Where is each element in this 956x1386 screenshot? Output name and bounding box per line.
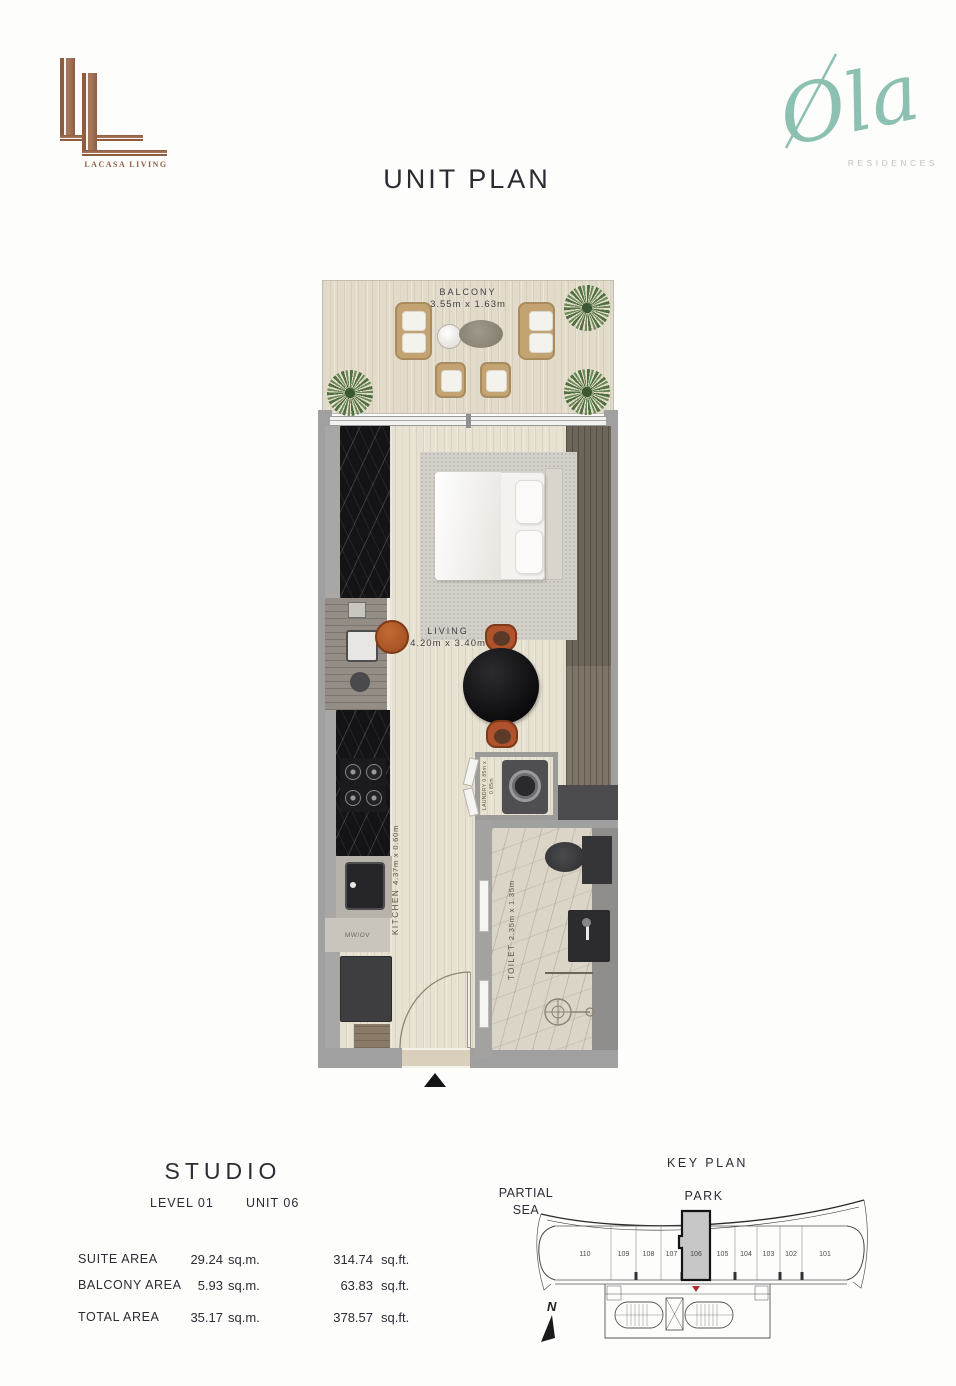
kitchen-label: KITCHEN	[391, 889, 400, 935]
compass-svg: N	[533, 1296, 577, 1346]
unit-number: 102	[785, 1251, 797, 1258]
balcony-side-table	[437, 324, 462, 349]
floor-plan: BALCONY 3.55m x 1.63m	[318, 280, 618, 1090]
stove-burner	[366, 764, 382, 780]
keyplan-core	[605, 1284, 770, 1338]
key-plan-title: KEY PLAN	[640, 1156, 775, 1170]
area-sqm-unit: sq.m.	[228, 1252, 260, 1267]
highlighted-unit	[679, 1211, 710, 1280]
window-center-post	[466, 414, 471, 428]
sofa-cushion	[529, 311, 553, 331]
area-sqft-unit: sq.ft.	[381, 1310, 409, 1325]
plant	[564, 369, 610, 415]
area-sqm-unit: sq.m.	[228, 1310, 260, 1325]
bed-headboard	[545, 468, 563, 580]
kitchen-counter-wood	[325, 598, 390, 710]
lacasa-logo-bar	[82, 150, 167, 156]
stove-burner	[345, 764, 361, 780]
area-sqm-value: 5.93	[160, 1278, 223, 1293]
toilet-label-group: TOILET 2.35m x 1.35m	[506, 860, 532, 1000]
ola-logo-subtitle: RESIDENCES	[828, 158, 938, 168]
bed-pillow	[515, 480, 543, 524]
ola-logo-script: Ola	[760, 48, 940, 168]
unit-type-title: STUDIO	[128, 1158, 318, 1185]
bed	[435, 472, 545, 580]
laundry-closet: LAUNDRY 0.85m x 0.85m	[475, 752, 558, 820]
mwov-panel: MW/OV	[325, 918, 390, 952]
lacasa-logo: LACASA LIVING	[55, 48, 195, 178]
area-sqft-value: 378.57	[312, 1310, 373, 1325]
toilet-back-panel	[582, 836, 612, 884]
area-name: SUITE AREA	[78, 1252, 158, 1266]
area-sqm-unit: sq.m.	[228, 1278, 260, 1293]
lacasa-logo-bar	[60, 135, 143, 141]
unit-number: 108	[643, 1251, 655, 1258]
wall-bottom	[318, 1048, 402, 1068]
sink-counter	[336, 856, 392, 918]
chair-cushion	[486, 370, 507, 392]
unit-number: 107	[666, 1251, 678, 1258]
dining-chair	[486, 720, 518, 748]
wardrobe	[340, 426, 390, 598]
sliding-door-panel	[479, 980, 489, 1028]
laundry-label: LAUNDRY 0.85m x 0.85m	[482, 759, 496, 813]
keyplan-left-wing	[539, 1226, 555, 1280]
chair-seat	[493, 631, 510, 646]
kitchen-label-group: KITCHEN 4.37m x 0.60m	[390, 815, 414, 945]
sofa-cushion	[402, 333, 426, 353]
unit-number: 103	[763, 1251, 775, 1258]
area-name: TOTAL AREA	[78, 1310, 160, 1324]
balcony-sofa	[518, 302, 555, 360]
vanity-knob	[582, 918, 591, 927]
dining-table	[463, 648, 539, 724]
wc	[545, 842, 585, 872]
unit-number: 104	[740, 1251, 752, 1258]
toilet-top-wall	[475, 820, 618, 828]
unit-plan-page: LACASA LIVING UNIT PLAN Ola RESIDENCES B…	[0, 0, 956, 1386]
washing-machine	[502, 760, 548, 814]
unit-number: 106	[690, 1251, 702, 1258]
shower-icon	[540, 992, 596, 1032]
keyplan-right-wing	[847, 1226, 864, 1280]
area-sqm-value: 29.24	[160, 1252, 223, 1267]
sofa-cushion	[529, 333, 553, 353]
unit-label: UNIT 06	[246, 1196, 299, 1210]
laundry-label-text: LAUNDRY	[482, 784, 488, 811]
charcoal-wall	[558, 785, 618, 822]
entrance-threshold	[402, 1048, 470, 1068]
toilet-dims: 2.35m x 1.35m	[507, 880, 516, 940]
balcony-armchair	[435, 362, 466, 398]
stove-burner	[345, 790, 361, 806]
north-compass: N	[533, 1296, 577, 1346]
bed-pillow	[515, 530, 543, 574]
kitchen-dims: 4.37m x 0.60m	[391, 825, 400, 885]
area-sqft-value: 314.74	[312, 1252, 373, 1267]
unit-number: 101	[819, 1251, 831, 1258]
lacasa-logo-bar	[82, 73, 97, 156]
counter-hob	[350, 672, 370, 692]
area-sqft-unit: sq.ft.	[381, 1278, 409, 1293]
wall-left	[318, 412, 325, 1068]
ola-logo: Ola RESIDENCES	[760, 48, 940, 178]
key-plan-map: 110 109 108 107 106 105 104 103 102 101	[535, 1198, 870, 1348]
sofa-cushion	[402, 311, 426, 331]
sink	[345, 862, 385, 910]
area-sqft-unit: sq.ft.	[381, 1252, 409, 1267]
north-label: N	[547, 1299, 557, 1314]
page-title: UNIT PLAN	[327, 164, 607, 195]
unit-number: 105	[717, 1251, 729, 1258]
stove	[340, 758, 386, 812]
bed-duvet	[435, 472, 501, 580]
compass-arrow-icon	[541, 1315, 555, 1342]
door-leaf	[467, 972, 471, 1048]
balcony-coffee-table	[459, 320, 503, 348]
kitchen-cabinet	[340, 956, 392, 1022]
area-sqm-value: 35.17	[160, 1310, 223, 1325]
unit-marker-icon	[692, 1286, 700, 1292]
unit-number: 110	[579, 1251, 590, 1258]
sink-faucet	[350, 882, 356, 888]
sliding-door-panel	[479, 880, 489, 932]
keyplan-ticks	[635, 1272, 804, 1280]
counter-basin	[346, 630, 378, 662]
door-swing-arc	[398, 970, 472, 1050]
toilet-label: TOILET	[507, 944, 516, 980]
plant	[564, 285, 610, 331]
washer-door	[509, 770, 541, 802]
area-sqft-value: 63.83	[312, 1278, 373, 1293]
unit-number: 109	[618, 1251, 630, 1258]
kitchen-wood-block	[354, 1024, 390, 1048]
vanity	[568, 910, 610, 962]
chair-seat	[494, 729, 511, 744]
stove-burner	[366, 790, 382, 806]
mwov-label: MW/OV	[345, 932, 370, 939]
lacasa-logo-bar	[60, 58, 75, 141]
entry-arrow-icon	[424, 1073, 446, 1087]
counter-appliance	[348, 602, 366, 618]
level-label: LEVEL 01	[150, 1196, 214, 1210]
ola-logo-text: Ola	[772, 48, 927, 164]
lacasa-logo-text: LACASA LIVING	[80, 160, 172, 169]
balcony-sofa	[395, 302, 432, 360]
balcony-armchair	[480, 362, 511, 398]
shower-partition	[545, 972, 593, 974]
kitchen-counter-black	[336, 710, 390, 856]
counter-edge	[387, 598, 390, 710]
chair-cushion	[441, 370, 462, 392]
wall-bottom	[470, 1048, 618, 1068]
plant	[327, 370, 373, 416]
